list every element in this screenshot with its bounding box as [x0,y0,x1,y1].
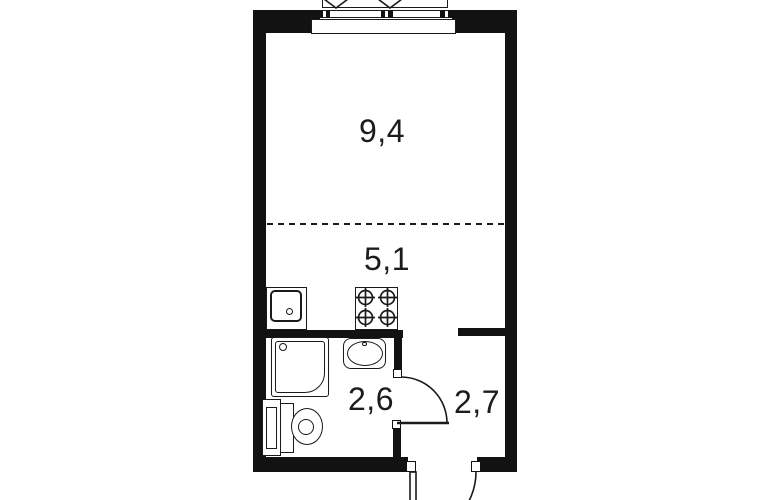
entrance-door-swing-icon [413,472,476,500]
wall-bath-stub-bottom [393,427,401,457]
room-area-label-hallway: 2,7 [454,386,500,418]
entrance-door-leaf [410,472,416,500]
entrance-door-jamb-left [406,461,416,472]
shower-drain [279,343,287,351]
wall-bottom-right [477,457,517,472]
window-mullion [388,11,393,18]
window-vent-leaf [322,0,448,8]
room-area-label-kitchen: 5,1 [364,243,410,275]
kitchen-sink-drain [286,308,293,315]
window-mullion [318,11,323,18]
window-mullion [440,11,445,18]
window-mullion [381,11,386,18]
window-mullion [448,11,453,18]
wall-top-right [452,10,517,33]
window-sill [311,19,456,34]
bathroom-door-jamb-top [393,369,402,378]
stove-4-burner-icon [355,287,398,330]
wall-right [505,10,517,472]
room-area-label-main: 9,4 [359,115,405,147]
room-area-label-bathroom: 2,6 [348,383,394,415]
utility-duct-inner [266,407,277,449]
window-glazing [318,10,452,18]
wall-top-left [253,10,320,33]
wall-hall-stub [458,328,517,336]
bathroom-door-jamb-bottom [392,420,401,429]
window-mullion [326,11,331,18]
wall-bath-stub-top [394,338,402,372]
wall-bottom-left [253,457,408,472]
toilet-bowl-inner [298,419,314,435]
kitchen-sink-bowl [270,290,302,322]
washbasin-faucet [362,342,367,347]
floor-plan: 9,4 5,1 2,6 2,7 [0,0,770,500]
bathroom-door-swing-icon [401,377,447,423]
entrance-door-jamb-right [471,461,481,472]
